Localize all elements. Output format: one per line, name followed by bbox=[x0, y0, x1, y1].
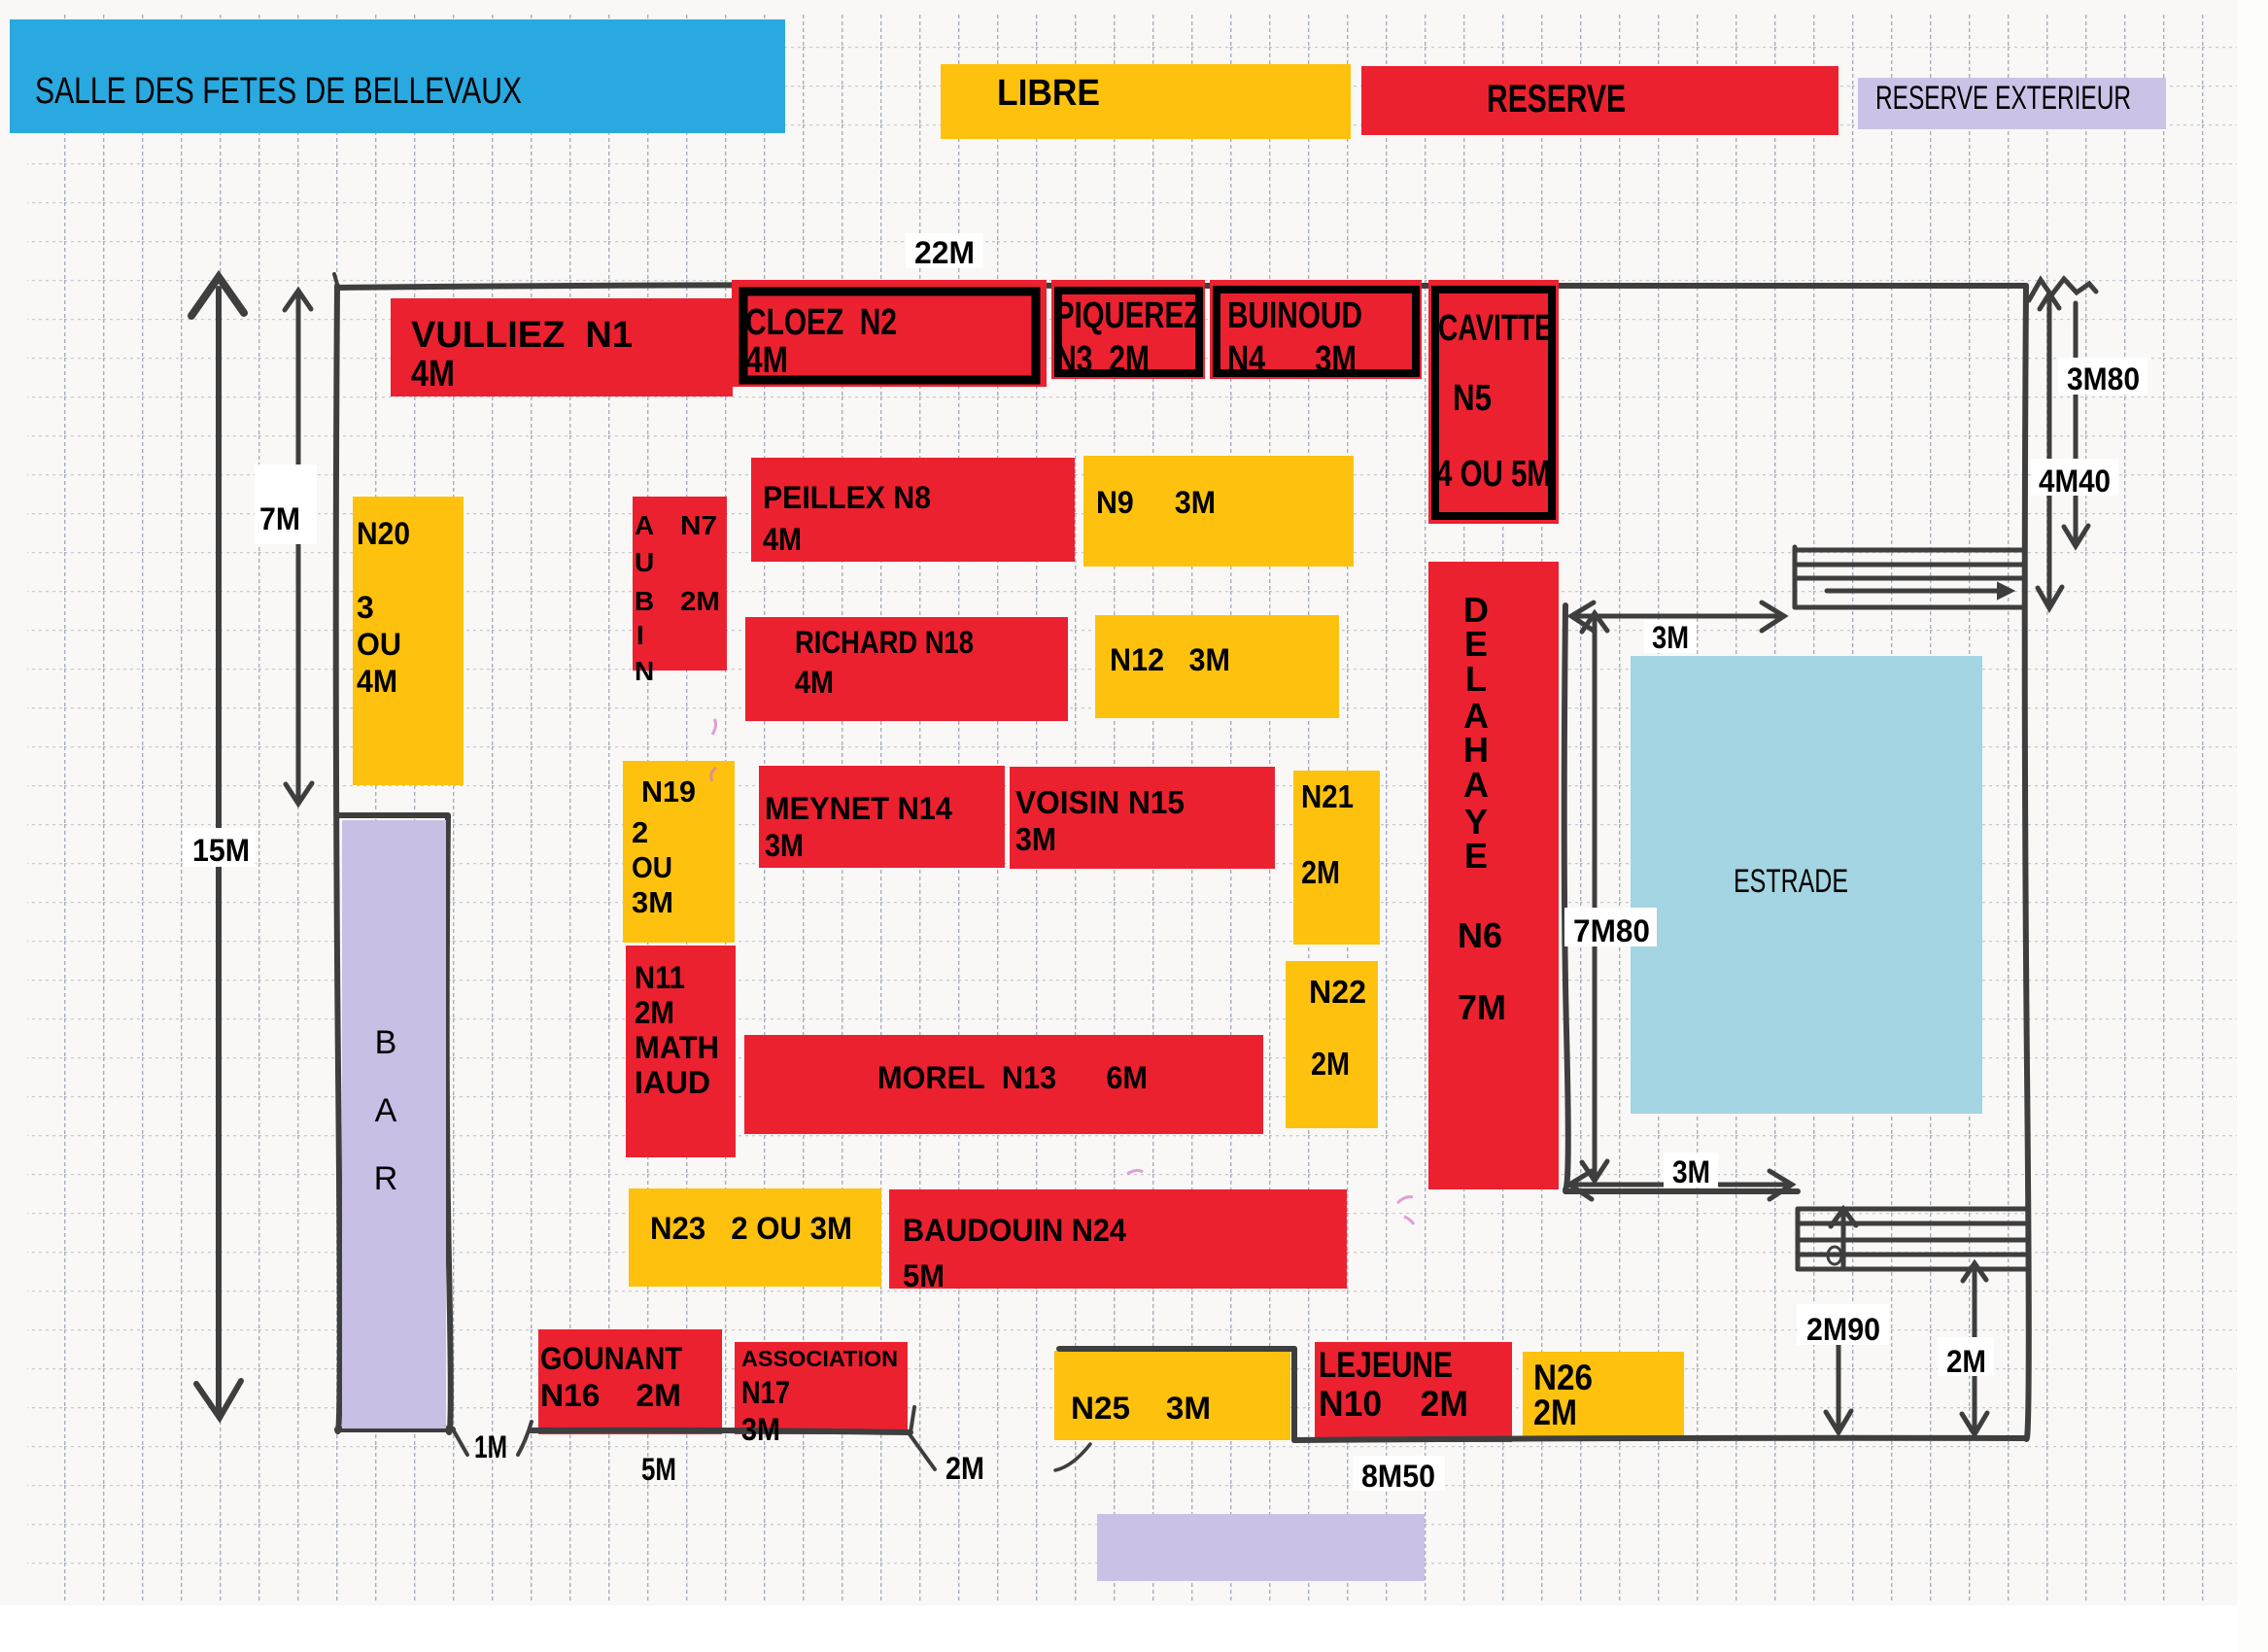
svg-text:3M80: 3M80 bbox=[2067, 361, 2140, 396]
svg-text:N20: N20 bbox=[357, 516, 410, 551]
svg-text:4M: 4M bbox=[745, 340, 788, 381]
svg-text:7M80: 7M80 bbox=[1573, 913, 1650, 948]
svg-text:N5: N5 bbox=[1453, 378, 1492, 419]
svg-text:3M: 3M bbox=[1652, 620, 1689, 655]
svg-text:VOISIN N15: VOISIN N15 bbox=[1015, 784, 1185, 820]
svg-text:H: H bbox=[1463, 730, 1489, 770]
svg-text:E: E bbox=[1464, 836, 1488, 876]
svg-text:CLOEZ N2: CLOEZ N2 bbox=[745, 302, 897, 343]
svg-text:BUINOUD: BUINOUD bbox=[1227, 295, 1362, 336]
svg-text:RICHARD N18: RICHARD N18 bbox=[795, 625, 974, 660]
svg-text:CAVITTE: CAVITTE bbox=[1438, 308, 1553, 349]
svg-text:U: U bbox=[635, 547, 654, 577]
svg-text:OU: OU bbox=[632, 850, 672, 884]
svg-text:N11: N11 bbox=[635, 960, 685, 995]
svg-text:I: I bbox=[636, 620, 644, 650]
svg-text:3M: 3M bbox=[765, 828, 804, 863]
svg-text:4M: 4M bbox=[763, 522, 802, 557]
svg-text:SALLE DES FETES DE BELLEVAUX: SALLE DES FETES DE BELLEVAUX bbox=[35, 71, 522, 112]
svg-text:7M: 7M bbox=[1458, 987, 1506, 1027]
svg-text:MOREL N13 6M: MOREL N13 6M bbox=[877, 1060, 1148, 1095]
svg-text:N3 2M: N3 2M bbox=[1055, 339, 1150, 380]
svg-text:BAUDOUIN N24: BAUDOUIN N24 bbox=[903, 1213, 1126, 1248]
svg-text:N4 3M: N4 3M bbox=[1227, 339, 1357, 380]
svg-text:3M: 3M bbox=[632, 885, 673, 919]
svg-text:L: L bbox=[1465, 659, 1487, 699]
svg-text:N26: N26 bbox=[1533, 1358, 1593, 1397]
svg-text:A: A bbox=[375, 1092, 397, 1129]
svg-text:3: 3 bbox=[357, 590, 374, 625]
svg-text:N25 3M: N25 3M bbox=[1071, 1391, 1211, 1426]
svg-text:1M: 1M bbox=[474, 1429, 507, 1464]
svg-text:4M: 4M bbox=[795, 665, 834, 700]
svg-text:7M: 7M bbox=[259, 501, 300, 536]
svg-text:LEJEUNE: LEJEUNE bbox=[1319, 1345, 1453, 1385]
svg-text:N19: N19 bbox=[641, 774, 696, 809]
svg-text:N23 2 OU 3M: N23 2 OU 3M bbox=[650, 1211, 852, 1246]
svg-text:2: 2 bbox=[632, 815, 648, 849]
svg-text:4M: 4M bbox=[411, 354, 455, 395]
svg-text:N17: N17 bbox=[741, 1375, 790, 1410]
svg-text:VULLIEZ N1: VULLIEZ N1 bbox=[411, 315, 633, 356]
svg-text:N16 2M: N16 2M bbox=[540, 1378, 681, 1413]
svg-text:MATH: MATH bbox=[635, 1030, 719, 1065]
svg-text:IAUD: IAUD bbox=[635, 1065, 710, 1100]
svg-text:4 OU 5M: 4 OU 5M bbox=[1436, 454, 1551, 495]
svg-text:2M: 2M bbox=[1311, 1046, 1350, 1082]
svg-text:LIBRE: LIBRE bbox=[997, 73, 1100, 114]
svg-text:2M: 2M bbox=[680, 586, 720, 616]
svg-text:N7: N7 bbox=[680, 510, 717, 540]
svg-text:OU: OU bbox=[357, 627, 401, 662]
svg-text:B: B bbox=[375, 1024, 397, 1061]
svg-text:R: R bbox=[374, 1160, 398, 1197]
svg-text:5M: 5M bbox=[641, 1452, 676, 1487]
svg-text:N: N bbox=[635, 656, 654, 686]
svg-text:ASSOCIATION: ASSOCIATION bbox=[741, 1346, 898, 1371]
svg-text:MEYNET N14: MEYNET N14 bbox=[765, 791, 952, 826]
svg-text:N12 3M: N12 3M bbox=[1110, 642, 1230, 677]
svg-text:4M40: 4M40 bbox=[2039, 464, 2111, 499]
svg-text:PEILLEX N8: PEILLEX N8 bbox=[763, 480, 931, 515]
svg-text:2M: 2M bbox=[1946, 1344, 1986, 1379]
svg-text:ESTRADE: ESTRADE bbox=[1734, 863, 1848, 900]
svg-text:2M: 2M bbox=[1533, 1393, 1577, 1432]
svg-text:3M: 3M bbox=[741, 1412, 780, 1447]
svg-text:3M: 3M bbox=[1015, 821, 1056, 857]
svg-text:RESERVE EXTERIEUR: RESERVE EXTERIEUR bbox=[1875, 80, 2131, 117]
svg-text:3M: 3M bbox=[1672, 1154, 1710, 1189]
svg-text:5M: 5M bbox=[903, 1258, 945, 1293]
svg-text:15M: 15M bbox=[192, 833, 250, 868]
svg-text:2M: 2M bbox=[635, 995, 674, 1030]
svg-text:2M: 2M bbox=[1301, 854, 1340, 890]
svg-text:N21: N21 bbox=[1301, 778, 1354, 814]
svg-text:N6: N6 bbox=[1458, 915, 1502, 955]
svg-text:B: B bbox=[635, 586, 654, 616]
svg-text:E: E bbox=[1464, 624, 1488, 664]
svg-text:PIQUEREZ: PIQUEREZ bbox=[1055, 295, 1201, 336]
svg-text:GOUNANT: GOUNANT bbox=[540, 1341, 682, 1376]
svg-text:4M: 4M bbox=[357, 664, 397, 699]
svg-text:8M50: 8M50 bbox=[1361, 1459, 1435, 1494]
svg-text:22M: 22M bbox=[914, 235, 975, 270]
svg-text:RESERVE: RESERVE bbox=[1487, 78, 1626, 120]
svg-text:N22: N22 bbox=[1309, 974, 1366, 1010]
svg-text:2M90: 2M90 bbox=[1806, 1312, 1880, 1347]
svg-text:N9 3M: N9 3M bbox=[1096, 485, 1216, 520]
svg-text:2M: 2M bbox=[945, 1451, 984, 1486]
svg-text:N10 2M: N10 2M bbox=[1319, 1384, 1468, 1424]
svg-text:A: A bbox=[1463, 765, 1489, 805]
svg-text:A: A bbox=[635, 510, 654, 540]
